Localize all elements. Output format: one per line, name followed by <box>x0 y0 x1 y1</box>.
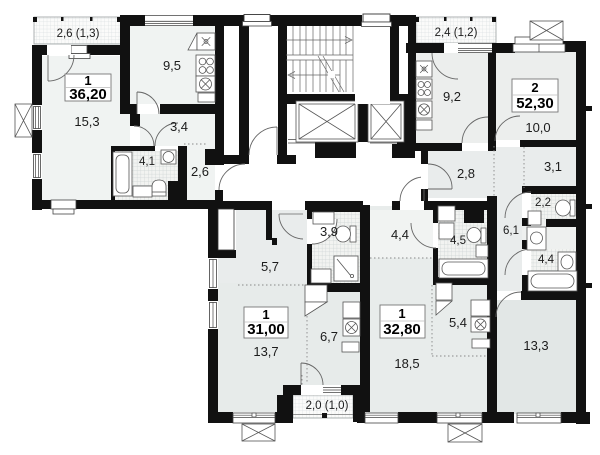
svg-text:13,7: 13,7 <box>253 344 278 359</box>
svg-text:2: 2 <box>531 80 538 95</box>
svg-text:4,5: 4,5 <box>450 235 466 247</box>
svg-text:4,4: 4,4 <box>391 227 409 242</box>
svg-text:3,9: 3,9 <box>320 224 338 239</box>
svg-text:52,30: 52,30 <box>516 95 554 112</box>
svg-text:15,3: 15,3 <box>74 114 99 129</box>
svg-text:10,0: 10,0 <box>525 120 550 135</box>
svg-text:31,00: 31,00 <box>247 321 285 338</box>
svg-text:2,2: 2,2 <box>535 197 551 209</box>
svg-text:2,8: 2,8 <box>457 166 475 181</box>
svg-text:9,5: 9,5 <box>163 58 181 73</box>
svg-text:4,4: 4,4 <box>538 254 555 266</box>
svg-text:36,20: 36,20 <box>69 86 107 103</box>
svg-text:5,7: 5,7 <box>261 259 279 274</box>
svg-text:3,4: 3,4 <box>170 119 188 134</box>
svg-text:2,0 (1,0): 2,0 (1,0) <box>306 400 349 412</box>
svg-text:4,1: 4,1 <box>139 156 155 168</box>
svg-text:1: 1 <box>262 307 269 322</box>
svg-text:2,6 (1,3): 2,6 (1,3) <box>57 28 100 40</box>
svg-text:9,2: 9,2 <box>443 89 461 104</box>
svg-text:13,3: 13,3 <box>523 338 548 353</box>
svg-text:2,6: 2,6 <box>191 164 209 179</box>
svg-text:2,4 (1,2): 2,4 (1,2) <box>435 27 478 39</box>
svg-text:6,7: 6,7 <box>320 329 338 344</box>
svg-text:1: 1 <box>398 306 405 321</box>
svg-text:5,4: 5,4 <box>449 315 467 330</box>
svg-text:6,1: 6,1 <box>503 225 519 237</box>
svg-text:32,80: 32,80 <box>383 321 421 338</box>
svg-text:18,5: 18,5 <box>394 356 419 371</box>
svg-text:3,1: 3,1 <box>544 159 562 174</box>
